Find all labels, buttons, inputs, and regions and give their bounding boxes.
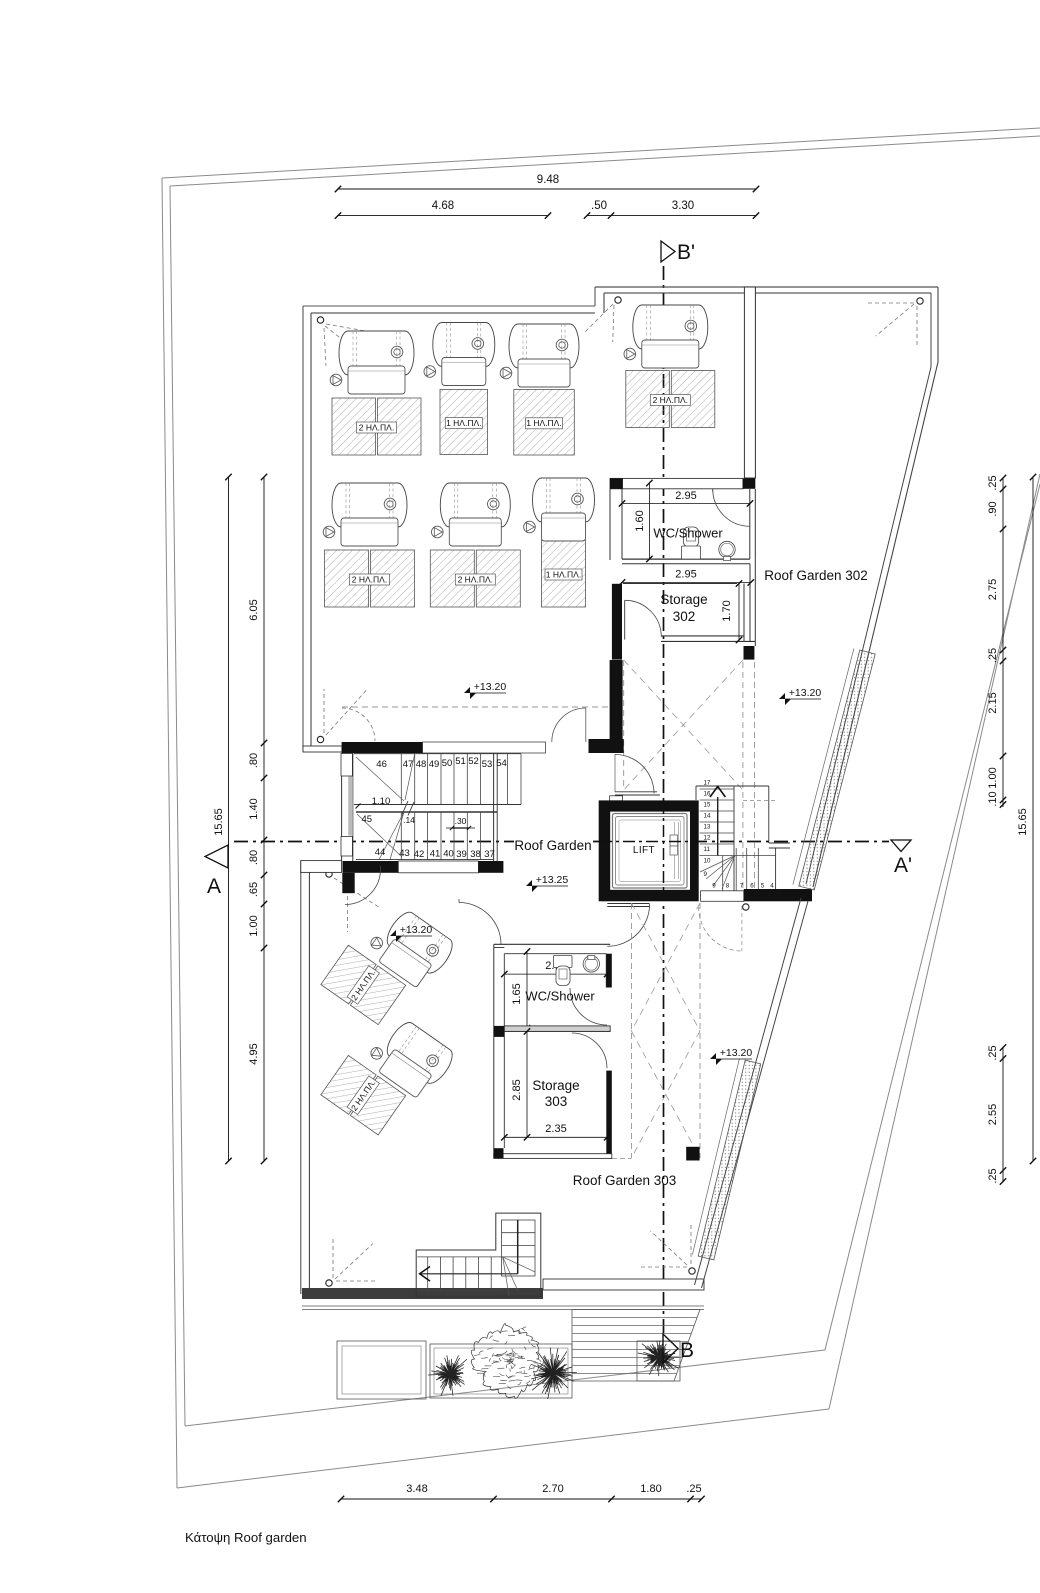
svg-text:50: 50: [442, 758, 453, 769]
svg-text:1 ΗΛ.ΠΛ.: 1 ΗΛ.ΠΛ.: [526, 418, 561, 428]
svg-text:302: 302: [673, 609, 696, 624]
svg-text:53: 53: [482, 759, 493, 770]
svg-text:Storage: Storage: [660, 592, 707, 607]
svg-text:6: 6: [750, 883, 754, 890]
svg-text:.25: .25: [987, 1168, 999, 1183]
svg-text:2.85: 2.85: [511, 1079, 523, 1100]
svg-text:2 ΗΛ.ΠΛ.: 2 ΗΛ.ΠΛ.: [352, 575, 387, 585]
svg-text:5: 5: [761, 883, 765, 890]
svg-text:12: 12: [704, 835, 711, 842]
svg-text:+13.20: +13.20: [720, 1047, 753, 1059]
svg-text:38: 38: [470, 849, 481, 860]
svg-text:17: 17: [704, 780, 711, 787]
svg-text:1.70: 1.70: [721, 600, 733, 621]
svg-text:A: A: [207, 875, 221, 898]
svg-text:15.65: 15.65: [1017, 808, 1029, 836]
svg-text:1.80: 1.80: [640, 1483, 661, 1495]
svg-text:A': A': [894, 854, 912, 877]
svg-text:3.30: 3.30: [672, 200, 694, 212]
svg-text:.30: .30: [455, 816, 467, 826]
svg-text:44: 44: [375, 847, 386, 858]
svg-text:Κάτοψη Roof garden: Κάτοψη Roof garden: [185, 1530, 307, 1545]
svg-text:9.48: 9.48: [537, 174, 559, 186]
svg-text:.90: .90: [987, 501, 999, 516]
svg-text:.14: .14: [403, 815, 415, 825]
svg-text:LIFT: LIFT: [633, 845, 655, 856]
svg-text:4.68: 4.68: [432, 200, 454, 212]
svg-text:.65: .65: [248, 882, 260, 897]
svg-text:3.48: 3.48: [406, 1483, 427, 1495]
svg-text:2.95: 2.95: [675, 569, 696, 581]
svg-text:2 ΗΛ.ΠΛ.: 2 ΗΛ.ΠΛ.: [359, 423, 394, 433]
svg-text:.50: .50: [591, 200, 607, 212]
svg-text:1.00: 1.00: [248, 915, 260, 936]
svg-text:+13.20: +13.20: [474, 681, 507, 693]
svg-text:2.15: 2.15: [987, 692, 999, 713]
svg-text:B': B': [677, 241, 695, 264]
svg-text:42: 42: [414, 849, 425, 860]
svg-text:2 ΗΛ.ΠΛ.: 2 ΗΛ.ΠΛ.: [458, 575, 493, 585]
svg-text:15: 15: [704, 802, 711, 809]
svg-text:4: 4: [770, 883, 774, 890]
svg-text:1 ΗΛ.ΠΛ.: 1 ΗΛ.ΠΛ.: [446, 418, 481, 428]
svg-text:39: 39: [456, 849, 467, 860]
svg-text:WC/Shower: WC/Shower: [653, 526, 723, 541]
svg-text:49: 49: [429, 759, 440, 770]
svg-text:+13.25: +13.25: [536, 874, 569, 886]
svg-text:2.75: 2.75: [987, 579, 999, 600]
svg-text:7: 7: [740, 883, 744, 890]
svg-text:16: 16: [704, 791, 711, 798]
svg-text:10: 10: [704, 858, 711, 865]
svg-text:6.05: 6.05: [248, 599, 260, 620]
svg-text:4.95: 4.95: [248, 1043, 260, 1064]
svg-text:2.70: 2.70: [542, 1483, 563, 1495]
svg-text:WC/Shower: WC/Shower: [525, 989, 595, 1004]
svg-text:54: 54: [496, 758, 507, 769]
svg-text:47: 47: [403, 759, 414, 770]
svg-text:2.35: 2.35: [545, 1123, 566, 1135]
svg-text:52: 52: [468, 756, 479, 767]
svg-text:.80: .80: [248, 753, 260, 768]
svg-text:+13.20: +13.20: [789, 687, 822, 699]
svg-text:48: 48: [416, 759, 427, 770]
svg-text:8: 8: [726, 883, 730, 890]
svg-text:.25: .25: [686, 1483, 701, 1495]
svg-text:14: 14: [704, 813, 711, 820]
svg-text:51: 51: [455, 756, 466, 767]
svg-text:2 ΗΛ.ΠΛ.: 2 ΗΛ.ΠΛ.: [653, 395, 688, 405]
svg-text:40: 40: [443, 849, 454, 860]
svg-text:1 ΗΛ.ΠΛ.: 1 ΗΛ.ΠΛ.: [546, 570, 581, 580]
svg-text:41: 41: [430, 849, 441, 860]
svg-text:Roof Garden 303: Roof Garden 303: [573, 1173, 677, 1188]
svg-text:15.65: 15.65: [213, 808, 225, 836]
svg-text:43: 43: [399, 848, 410, 859]
svg-text:Roof Garden: Roof Garden: [514, 838, 591, 853]
svg-text:.10: .10: [987, 791, 999, 806]
svg-text:Storage: Storage: [532, 1078, 579, 1093]
svg-text:Roof Garden 302: Roof Garden 302: [764, 568, 868, 583]
svg-text:1.60: 1.60: [634, 510, 646, 531]
svg-text:1.10: 1.10: [372, 796, 391, 807]
svg-text:303: 303: [545, 1094, 568, 1109]
svg-text:1.00: 1.00: [987, 767, 999, 788]
svg-text:13: 13: [704, 824, 711, 831]
svg-text:9: 9: [712, 883, 716, 890]
svg-text:9: 9: [704, 871, 708, 878]
svg-text:46: 46: [376, 759, 387, 770]
svg-text:1.40: 1.40: [248, 798, 260, 819]
svg-text:11: 11: [704, 846, 711, 853]
svg-text:45: 45: [362, 814, 373, 825]
svg-text:.25: .25: [987, 1045, 999, 1060]
svg-text:37: 37: [484, 849, 495, 860]
svg-text:2.55: 2.55: [987, 1104, 999, 1125]
svg-text:1.65: 1.65: [511, 983, 523, 1004]
svg-text:.80: .80: [248, 850, 260, 865]
svg-text:2.95: 2.95: [675, 490, 696, 502]
svg-text:B: B: [680, 1339, 694, 1362]
svg-text:+13.20: +13.20: [400, 924, 433, 936]
svg-text:.25: .25: [987, 648, 999, 663]
svg-text:.25: .25: [987, 475, 999, 490]
